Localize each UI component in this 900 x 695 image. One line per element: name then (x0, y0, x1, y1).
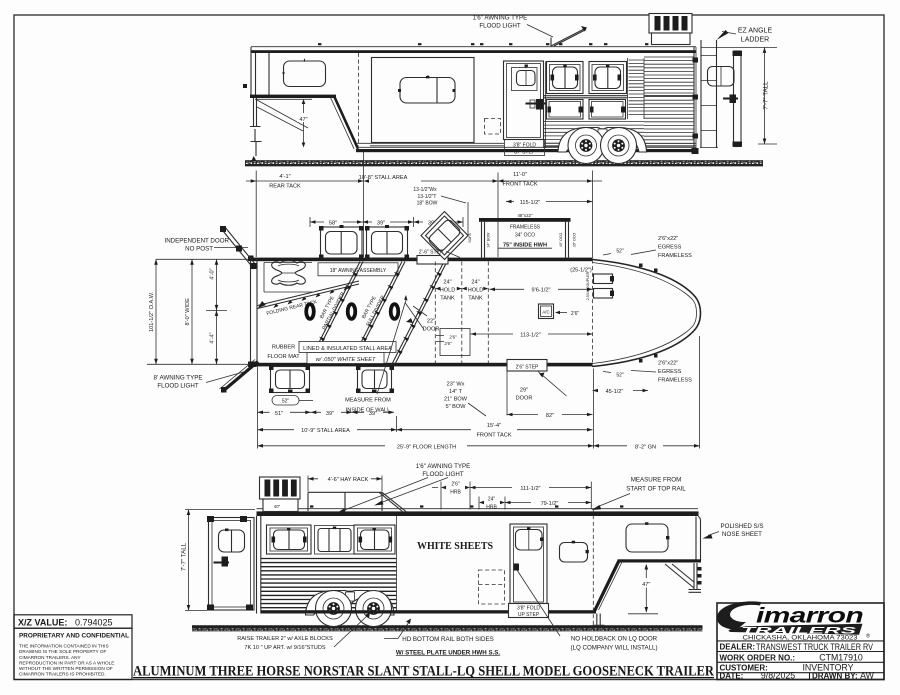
svg-text:FLOOD LIGHT: FLOOD LIGHT (157, 383, 198, 390)
svg-text:(LQ COMPANY WILL INSTALL): (LQ COMPANY WILL INSTALL) (570, 645, 657, 652)
svg-text:2'6"x22": 2'6"x22" (658, 236, 678, 242)
svg-text:22": 22" (427, 318, 435, 324)
svg-text:2'6": 2'6" (449, 334, 457, 339)
svg-text:START OF TOP RAIL: START OF TOP RAIL (626, 485, 686, 492)
svg-text:47": 47" (642, 582, 650, 588)
svg-text:52": 52" (616, 248, 624, 254)
svg-text:CTM17910: CTM17910 (819, 653, 863, 663)
svg-text:DRAWN BY:: DRAWN BY: (812, 672, 858, 681)
svg-text:THE INFORMATION CONTAINED IN T: THE INFORMATION CONTAINED IN THIS (19, 644, 109, 649)
svg-text:TANK: TANK (440, 295, 455, 301)
svg-text:LINED & INSULATED STALL AREA: LINED & INSULATED STALL AREA (303, 346, 392, 352)
svg-text:8'-0" WIDE: 8'-0" WIDE (185, 298, 191, 326)
svg-text:39": 39" (369, 411, 377, 417)
svg-text:3'8" FOLD: 3'8" FOLD (513, 142, 536, 148)
svg-text:21" BOW: 21" BOW (444, 397, 468, 403)
svg-text:10'-8" STALL AREA: 10'-8" STALL AREA (359, 175, 408, 181)
svg-text:FLOOD LIGHT: FLOOD LIGHT (422, 471, 463, 478)
svg-text:39": 39" (326, 411, 334, 417)
svg-text:DRAWING IS THE SOLE PROPERTY O: DRAWING IS THE SOLE PROPERTY OF (19, 649, 106, 654)
svg-text:14" T: 14" T (449, 389, 463, 395)
svg-text:NOSE SHEET: NOSE SHEET (722, 531, 762, 538)
svg-text:FRAMELESS: FRAMELESS (658, 253, 692, 259)
svg-text:DOOR: DOOR (516, 395, 533, 401)
svg-text:40": 40" (274, 504, 281, 509)
svg-text:RAISE TRAILER 2" w/ AXLE BLOCK: RAISE TRAILER 2" w/ AXLE BLOCKS (237, 636, 333, 642)
svg-text:18" BOW: 18" BOW (417, 201, 438, 207)
svg-text:4'-0": 4'-0" (210, 268, 216, 279)
svg-text:34" BOW: 34" BOW (487, 232, 491, 247)
svg-text:4'-1": 4'-1" (279, 174, 290, 180)
svg-text:9'6-1/2": 9'6-1/2" (532, 288, 551, 294)
svg-text:2'6": 2'6" (451, 482, 460, 488)
svg-text:2'-6" STEP: 2'-6" STEP (419, 249, 444, 255)
svg-text:CIMARRON TRAILERS. ANY: CIMARRON TRAILERS. ANY (19, 655, 82, 660)
svg-text:X/Z VALUE:: X/Z VALUE: (18, 617, 67, 627)
svg-text:CHICKASHA, OKLAHOMA 73023: CHICKASHA, OKLAHOMA 73023 (743, 635, 858, 642)
svg-text:2'6" STEP: 2'6" STEP (516, 365, 539, 371)
svg-text:PROPRIETARY AND CONFIDENTIAL: PROPRIETARY AND CONFIDENTIAL (19, 633, 129, 640)
svg-text:RUBBER: RUBBER (272, 345, 295, 351)
svg-text:HRB: HRB (450, 490, 461, 496)
svg-text:7'-7" TALL: 7'-7" TALL (181, 542, 188, 571)
svg-text:AW: AW (860, 671, 875, 681)
svg-text:HRB: HRB (486, 505, 497, 511)
svg-text:2'6": 2'6" (571, 311, 580, 317)
svg-text:48"x22": 48"x22" (517, 213, 533, 218)
svg-text:2'6"x22": 2'6"x22" (658, 360, 678, 366)
svg-text:POLISHED S/S: POLISHED S/S (721, 523, 764, 530)
svg-text:24": 24" (443, 279, 451, 285)
svg-text:imarron: imarron (756, 604, 863, 628)
svg-text:39" OCO: 39" OCO (573, 233, 577, 248)
svg-text:W/ STEEL PLATE UNDER HWH S.S.: W/ STEEL PLATE UNDER HWH S.S. (396, 649, 501, 656)
svg-text:WORK ORDER NO.:: WORK ORDER NO.: (720, 653, 796, 662)
svg-text:FRONT TACK: FRONT TACK (502, 181, 537, 187)
svg-text:2-5/16 COUPLER: 2-5/16 COUPLER (586, 271, 590, 300)
svg-text:101-1/2" O.A.W.: 101-1/2" O.A.W. (149, 291, 155, 332)
svg-text:HD BOTTOM RAIL BOTH SIDES: HD BOTTOM RAIL BOTH SIDES (402, 636, 493, 643)
svg-text:UP STEP: UP STEP (514, 150, 536, 156)
svg-text:47": 47" (299, 117, 307, 123)
svg-text:LADDER: LADDER (741, 37, 769, 44)
svg-text:FRAMELESS: FRAMELESS (658, 378, 692, 384)
svg-text:2'6": 2'6" (444, 341, 452, 346)
svg-text:EZ ANGLE: EZ ANGLE (738, 28, 773, 35)
svg-text:FLOOR MAT: FLOOR MAT (267, 354, 300, 360)
svg-text:FRAMELESS: FRAMELESS (510, 225, 541, 231)
svg-text:111-1/2": 111-1/2" (520, 486, 540, 492)
svg-text:DATE:: DATE: (720, 672, 744, 681)
svg-text:8' AWNING TYPE: 8' AWNING TYPE (154, 375, 203, 382)
svg-text:HOLD: HOLD (440, 287, 456, 293)
svg-text:®: ® (866, 633, 870, 640)
svg-text:39": 39" (377, 220, 385, 226)
svg-text:8'-2" GN: 8'-2" GN (635, 444, 656, 450)
svg-text:0.794025: 0.794025 (75, 617, 113, 627)
svg-text:MEASURE FROM: MEASURE FROM (631, 477, 682, 484)
svg-text:29": 29" (520, 387, 528, 393)
svg-text:CIMARRON TRAILERS IS PROHIBITE: CIMARRON TRAILERS IS PROHIBITED. (19, 672, 106, 677)
svg-text:MEASURE FROM: MEASURE FROM (345, 397, 391, 403)
svg-text:25'-9" FLOOR LENGTH: 25'-9" FLOOR LENGTH (397, 444, 456, 450)
svg-text:3'8" FOLD: 3'8" FOLD (517, 605, 540, 611)
svg-text:52": 52" (282, 399, 290, 405)
svg-text:1'6" AWNING TYPE: 1'6" AWNING TYPE (416, 463, 471, 470)
svg-text:UP STEP: UP STEP (518, 612, 540, 618)
svg-text:HOLD: HOLD (468, 287, 484, 293)
svg-text:7K 10 " UP ART. w/ 9/16"STUDS: 7K 10 " UP ART. w/ 9/16"STUDS (244, 645, 325, 651)
svg-text:FLOOD LIGHT: FLOOD LIGHT (479, 23, 520, 30)
svg-text:5" BOW: 5" BOW (445, 404, 466, 410)
svg-text:REAR TACK: REAR TACK (269, 183, 301, 189)
svg-text:52": 52" (616, 372, 624, 378)
svg-text:51": 51" (275, 411, 283, 417)
svg-text:7'-7" TALL: 7'-7" TALL (763, 81, 770, 110)
svg-text:13-1/2"Wx: 13-1/2"Wx (413, 187, 437, 193)
svg-text:DEALER:: DEALER: (720, 643, 756, 652)
svg-text:4'-6" HAY RACK: 4'-6" HAY RACK (328, 477, 369, 483)
svg-text:INDEPENDENT DOOR: INDEPENDENT DOOR (164, 238, 229, 245)
svg-text:DOOR: DOOR (423, 326, 440, 332)
svg-text:11'-0": 11'-0" (513, 172, 527, 178)
svg-text:w/ .050" WHITE SHEET: w/ .050" WHITE SHEET (316, 357, 376, 363)
svg-text:115-1/2": 115-1/2" (520, 200, 541, 206)
svg-text:1'6" AWNING TYPE: 1'6" AWNING TYPE (473, 15, 528, 22)
svg-text:TANK: TANK (468, 295, 483, 301)
svg-text:9/8/2025: 9/8/2025 (761, 671, 795, 681)
svg-text:TRANSWEST TRUCK TRAILER RV: TRANSWEST TRUCK TRAILER RV (756, 642, 873, 652)
svg-text:40" OCO: 40" OCO (559, 233, 563, 248)
svg-text:WITHOUT THE WRITTEN PERMISSION: WITHOUT THE WRITTEN PERMISSION OF (19, 666, 113, 671)
svg-text:58": 58" (329, 220, 337, 226)
svg-text:ALUMINUM THREE HORSE NORSTAR S: ALUMINUM THREE HORSE NORSTAR SLANT STALL… (133, 662, 715, 679)
svg-text:79-1/2": 79-1/2" (541, 501, 559, 507)
svg-text:NO POST: NO POST (185, 245, 213, 252)
svg-text:23" Wx: 23" Wx (447, 381, 465, 387)
svg-text:13-1/2"T: 13-1/2"T (417, 194, 436, 200)
svg-text:34" OCO: 34" OCO (515, 232, 535, 238)
svg-text:WHITE SHEETS: WHITE SHEETS (417, 541, 493, 552)
svg-text:A/C: A/C (542, 310, 549, 315)
svg-text:EGRESS: EGRESS (658, 245, 682, 251)
svg-text:15'-4": 15'-4" (487, 423, 501, 429)
svg-text:113-1/2": 113-1/2" (520, 332, 541, 338)
svg-text:24": 24" (471, 279, 479, 285)
svg-text:4'-4": 4'-4" (210, 332, 216, 343)
svg-text:82": 82" (546, 413, 554, 419)
svg-text:10'-9" STALL AREA: 10'-9" STALL AREA (301, 428, 350, 434)
svg-text:SOFA: SOFA (468, 233, 472, 243)
svg-text:FRONT TACK: FRONT TACK (476, 433, 511, 439)
svg-text:REPRODUCTION IN PART OR AS A W: REPRODUCTION IN PART OR AS A WHOLE (19, 660, 114, 665)
svg-text:75" INSIDE HWH: 75" INSIDE HWH (503, 242, 547, 248)
svg-text:45-1/2": 45-1/2" (606, 389, 624, 395)
svg-text:EGRESS: EGRESS (658, 369, 682, 375)
svg-text:24": 24" (488, 497, 496, 503)
svg-text:NO HOLDBACK ON LQ DOOR: NO HOLDBACK ON LQ DOOR (571, 635, 658, 642)
